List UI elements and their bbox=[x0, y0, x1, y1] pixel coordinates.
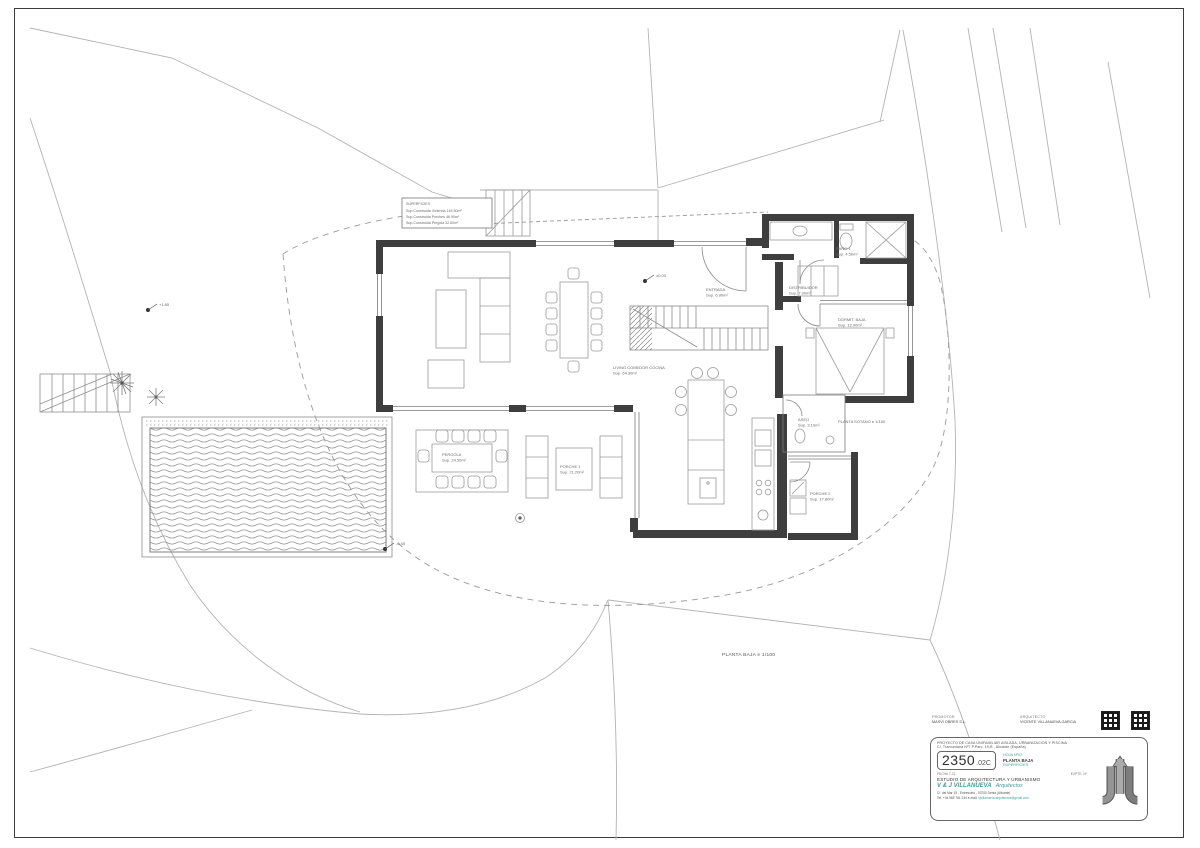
promoter-block: PROMOTOR MASVI OBRES S.L. bbox=[932, 715, 966, 724]
room-label-distribuidor: DISTRIBUIDOR bbox=[789, 285, 818, 290]
ground-plan-title: PLANTA BAJA e 1/100 bbox=[722, 652, 775, 658]
contact-email: vjvillanueva.arquitectos@gmail.com bbox=[978, 796, 1029, 800]
sheet-subject: SUPERFICIES bbox=[1003, 763, 1034, 768]
job-number-box: 2350 .02C bbox=[937, 751, 996, 770]
firm-suffix: Arquitectos bbox=[996, 783, 1023, 789]
title-block: PROMOTOR MASVI OBRES S.L. ARQUITECTO VIC… bbox=[924, 703, 1156, 825]
room-label-porche1: PORCHE 1 bbox=[560, 464, 581, 469]
upper-terrace-steps bbox=[486, 190, 530, 236]
architect-block: ARQUITECTO VICENTE VILLANUEVA GARCIA bbox=[1020, 715, 1076, 724]
exterior-steps bbox=[40, 374, 130, 412]
furniture bbox=[416, 222, 906, 530]
job-number-suffix: .02C bbox=[976, 760, 991, 767]
project-address: C/. Tramuntana Nº7 P.Parc. 19-B , Alican… bbox=[937, 745, 1141, 749]
room-area: Sup. 6.90m² bbox=[706, 293, 728, 298]
level-entry: ±0.00 bbox=[656, 273, 667, 278]
room-label-dormitorio: DORMIT. BAJA bbox=[838, 317, 866, 322]
room-area: Sup. 3.10m² bbox=[798, 423, 820, 428]
promoter-label: PROMOTOR bbox=[932, 715, 966, 719]
room-label-aseo: ASEO bbox=[798, 417, 809, 422]
legend-line: Sup.Construida Porches 46.90m² bbox=[406, 215, 460, 219]
date-label: FECHA 7.22 bbox=[937, 772, 955, 776]
stairs bbox=[630, 306, 768, 350]
firm-logo-icon bbox=[1098, 750, 1142, 812]
contact-text: Tel. +34 965 781 234 e-mail: bbox=[937, 796, 977, 800]
room-label-entrada: ENTRADA bbox=[706, 287, 725, 292]
legend-title: SUPERFICIES bbox=[406, 202, 431, 206]
house-walls bbox=[376, 214, 914, 540]
sheet-info: HOJA Nº02 PLANTA BAJA SUPERFICIES bbox=[1003, 753, 1034, 768]
promoter-name: MASVI OBRES S.L. bbox=[932, 720, 966, 724]
level-terrain: +1.85 bbox=[159, 302, 170, 307]
room-area: Sup. 64.30m² bbox=[613, 371, 638, 376]
room-label-pergola: PERGOLA bbox=[442, 452, 462, 457]
room-label-bano: BAÑO 1 bbox=[836, 246, 851, 251]
surface-legend: SUPERFICIES Sup.Construida Vivienda 145.… bbox=[402, 198, 492, 228]
architect-name: VICENTE VILLANUEVA GARCIA bbox=[1020, 720, 1076, 724]
expte-label: EXPTE. Nº bbox=[1071, 772, 1087, 776]
qr-code-icon bbox=[1101, 711, 1120, 730]
sotano-plan-title: PLANTA SOTANO e 1/100 bbox=[838, 419, 886, 424]
architect-label: ARQUITECTO bbox=[1020, 715, 1076, 719]
job-number: 2350 bbox=[942, 752, 975, 768]
legend-line: Sup.Construida Vivienda 145.50m² bbox=[406, 209, 462, 213]
title-block-box: PROYECTO DE CASA UNIFAMILIAR AISLADA, UR… bbox=[930, 737, 1148, 821]
level-pool: -0.45 bbox=[396, 541, 406, 546]
room-area: Sup. 24.50m² bbox=[442, 458, 467, 463]
room-area: Sup. 7.90m² bbox=[789, 291, 811, 296]
firm-name: V & J VILLANUEVA bbox=[937, 783, 992, 789]
date-row: FECHA 7.22 EXPTE. Nº bbox=[937, 772, 1087, 776]
legend-line: Sup.Construida Pergola 32.60m² bbox=[406, 221, 459, 225]
pool bbox=[142, 417, 392, 557]
room-area: Sup. 21.20m² bbox=[560, 470, 585, 475]
qr-code-icon bbox=[1131, 711, 1150, 730]
room-area: Sup. 12.90m² bbox=[838, 323, 863, 328]
room-label-living: LIVING COMEDOR COCINA bbox=[613, 365, 665, 370]
room-area: Sup. 17.80m² bbox=[810, 497, 835, 502]
room-area: Sup. 4.50m² bbox=[836, 252, 858, 257]
doors bbox=[702, 247, 824, 482]
title-block-header: PROMOTOR MASVI OBRES S.L. ARQUITECTO VIC… bbox=[932, 715, 1152, 735]
room-label-porche2: PORCHE 2 bbox=[810, 491, 831, 496]
